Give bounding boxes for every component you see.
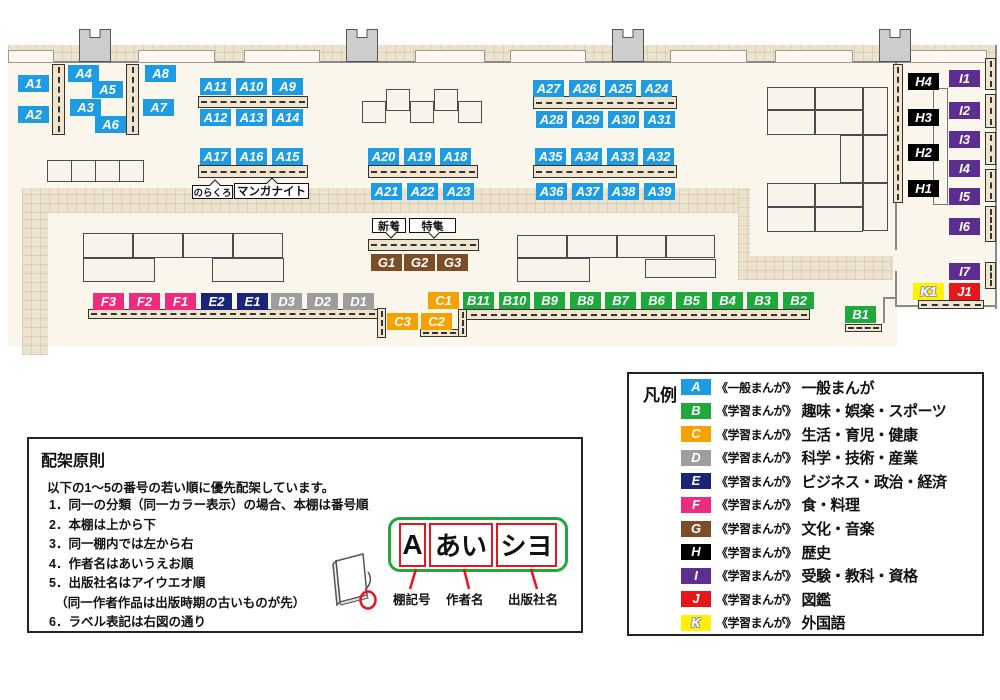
bookshelf	[533, 165, 677, 178]
bookshelf	[893, 64, 903, 203]
shelf-label-A21: A21	[371, 183, 402, 200]
shelf-label-A13: A13	[236, 109, 267, 126]
shelf-label-A12: A12	[200, 109, 231, 126]
shelf-label-A33: A33	[607, 148, 638, 165]
shelf-label-E2: E2	[201, 293, 232, 310]
shelf-label-B8: B8	[570, 292, 601, 309]
pillar	[612, 29, 644, 62]
shelf-label-B11: B11	[463, 292, 494, 309]
reading-table	[410, 101, 434, 123]
shelf-label-I6: I6	[949, 218, 980, 235]
shelf-label-A10: A10	[236, 78, 267, 95]
wall-shelf	[8, 50, 54, 63]
reading-table	[617, 235, 666, 258]
principles-title: 配架原則	[41, 447, 105, 471]
shelf-label-I1: I1	[949, 70, 980, 87]
shelf-label-B9: B9	[534, 292, 565, 309]
pillar	[79, 29, 111, 62]
reading-table	[840, 135, 863, 183]
shelf-label-A4: A4	[68, 65, 99, 82]
shelf-label-B4: B4	[712, 292, 743, 309]
shelf-label-A24: A24	[641, 80, 672, 97]
legend-title: 凡例	[643, 381, 677, 406]
legend-chip-A: A	[681, 379, 711, 395]
bookshelf	[198, 96, 308, 108]
shelf-label-A29: A29	[572, 111, 603, 128]
label-field-棚記号: A	[399, 523, 426, 567]
legend-chip-G: G	[681, 521, 711, 537]
shelf-label-A30: A30	[608, 111, 639, 128]
pillar-notch	[890, 29, 901, 38]
principles-line: 5．出版社名はアイウエオ順	[49, 574, 368, 594]
wall	[883, 297, 897, 299]
shelf-label-B2: B2	[783, 292, 814, 309]
shelf-label-A15: A15	[272, 148, 303, 165]
legend-item-E: E《学習まんが》ビジネス・政治・経済	[681, 473, 947, 489]
principles-line: 2．本棚は上から下	[49, 516, 368, 536]
principles-line: 6．ラベル表記は右図の通り	[49, 613, 368, 633]
legend-item-J: J《学習まんが》図鑑	[681, 591, 947, 607]
legend-scope: 《学習まんが》	[716, 567, 797, 584]
book-spine-label-icon	[326, 548, 380, 612]
reading-table	[645, 259, 716, 278]
legend-scope: 《学習まんが》	[716, 614, 797, 631]
shelf-label-A3: A3	[70, 99, 101, 116]
legend-item-F: F《学習まんが》食・料理	[681, 497, 947, 513]
wall	[883, 297, 885, 323]
reading-table	[666, 235, 715, 258]
shelf-label-A1: A1	[18, 75, 49, 92]
principles-line: （同一作者作品は出版時期の古いものが先）	[49, 594, 368, 614]
legend-category-name: 食・料理	[802, 494, 860, 515]
shelf-label-I7: I7	[949, 263, 980, 280]
legend-item-B: B《学習まんが》趣味・娯楽・スポーツ	[681, 403, 947, 419]
shelf-label-A22: A22	[407, 183, 438, 200]
shelf-label-A9: A9	[272, 78, 303, 95]
shelf-label-B10: B10	[499, 292, 530, 309]
reading-table	[83, 258, 155, 282]
pillar	[346, 29, 378, 62]
label-example: Aあいシヨ	[388, 517, 568, 572]
bookshelf	[126, 64, 139, 135]
label-field-caption: 出版社名	[508, 589, 558, 608]
bookshelf	[458, 309, 467, 337]
shelf-label-G1: G1	[371, 254, 402, 271]
label-field-作者名: あい	[429, 523, 493, 567]
legend-chip-H: H	[681, 544, 711, 560]
callout-マンガナイト: マンガナイト	[234, 183, 309, 199]
shelf-label-A26: A26	[569, 80, 600, 97]
callout-特集: 特集	[409, 218, 456, 233]
shelf-label-A25: A25	[605, 80, 636, 97]
shelf-label-H3: H3	[908, 109, 939, 126]
shelf-label-D2: D2	[307, 293, 338, 310]
reading-table	[233, 233, 283, 258]
shelf-label-D3: D3	[271, 293, 302, 310]
bookshelf	[368, 165, 478, 178]
reading-table	[767, 207, 815, 232]
legend-item-H: H《学習まんが》歴史	[681, 544, 947, 560]
legend-chip-D: D	[681, 450, 711, 466]
shelf-label-A17: A17	[200, 148, 231, 165]
shelf-label-A14: A14	[272, 109, 303, 126]
principles-intro: 以下の1～5の番号の若い順に優先配架しています。	[47, 477, 334, 496]
principles-list: 1．同一の分類（同一カラー表示）の場合、本棚は番号順2．本棚は上から下3．同一棚…	[49, 496, 368, 633]
pillar-notch	[357, 29, 368, 38]
reading-table	[767, 183, 815, 207]
bookshelf	[377, 308, 386, 338]
bookshelf	[985, 94, 996, 128]
wall-shelf	[415, 50, 485, 63]
legend-rows: A《一般まんが》一般まんがB《学習まんが》趣味・娯楽・スポーツC《学習まんが》生…	[681, 379, 947, 631]
floor-map-page: A1A2A4A3A5A6A8A7A11A10A9A12A13A14A17A16A…	[0, 0, 1000, 700]
bookshelf	[458, 309, 810, 320]
shelf-label-A27: A27	[533, 80, 564, 97]
shelf-label-G3: G3	[437, 254, 468, 271]
legend-category-name: ビジネス・政治・経済	[802, 471, 947, 492]
bookshelf	[52, 64, 65, 135]
shelf-label-A36: A36	[536, 183, 567, 200]
shelf-label-I2: I2	[949, 102, 980, 119]
shelf-label-A28: A28	[536, 111, 567, 128]
shelf-label-I4: I4	[949, 160, 980, 177]
reading-table	[863, 183, 888, 231]
bookshelf	[198, 165, 308, 178]
legend-scope: 《学習まんが》	[716, 402, 797, 419]
legend-category-name: 趣味・娯楽・スポーツ	[802, 400, 947, 421]
shelf-label-A23: A23	[443, 183, 474, 200]
shelf-label-A39: A39	[644, 183, 675, 200]
wall-shelf	[244, 50, 320, 63]
wall	[895, 271, 897, 307]
legend-scope: 《一般まんが》	[716, 379, 797, 396]
shelf-label-A2: A2	[18, 106, 49, 123]
legend-chip-F: F	[681, 497, 711, 513]
shelf-label-B7: B7	[605, 292, 636, 309]
reading-table	[815, 87, 863, 110]
shelf-label-A38: A38	[608, 183, 639, 200]
bookshelf	[533, 96, 677, 109]
shelf-label-D1: D1	[343, 293, 374, 310]
reading-table	[386, 89, 410, 111]
principles-line: 1．同一の分類（同一カラー表示）の場合、本棚は番号順	[49, 496, 368, 516]
principles-line: 4．作者名はあいうえお順	[49, 555, 368, 575]
reading-table	[434, 89, 458, 111]
label-field-出版社名: シヨ	[496, 523, 557, 567]
legend-item-K: K《学習まんが》外国語	[681, 615, 947, 631]
principles-line: 3．同一棚内では左から右	[49, 535, 368, 555]
pillar-notch	[90, 29, 101, 38]
shelf-label-E1: E1	[237, 293, 268, 310]
legend-category-name: 科学・技術・産業	[802, 447, 918, 468]
reading-table	[183, 233, 233, 258]
shelf-label-A37: A37	[572, 183, 603, 200]
shelf-label-A6: A6	[95, 116, 126, 133]
shelf-label-A32: A32	[643, 148, 674, 165]
walkway-carpet	[22, 188, 48, 355]
label-field-caption: 棚記号	[393, 589, 431, 608]
legend-panel: 凡例 A《一般まんが》一般まんがB《学習まんが》趣味・娯楽・スポーツC《学習まん…	[627, 372, 984, 636]
shelf-label-I3: I3	[949, 131, 980, 148]
shelf-label-B5: B5	[676, 292, 707, 309]
shelf-label-G2: G2	[404, 254, 435, 271]
legend-item-A: A《一般まんが》一般まんが	[681, 379, 947, 395]
legend-category-name: 生活・育児・健康	[802, 424, 918, 445]
shelf-label-A7: A7	[143, 99, 174, 116]
shelf-label-A34: A34	[571, 148, 602, 165]
bookshelf	[985, 58, 996, 90]
bookshelf	[420, 329, 459, 337]
reading-table	[567, 235, 617, 258]
legend-category-name: 外国語	[802, 612, 846, 633]
shelf-label-A31: A31	[644, 111, 675, 128]
legend-chip-B: B	[681, 403, 711, 419]
shelf-label-J1: J1	[949, 283, 980, 300]
shelf-label-A19: A19	[404, 148, 435, 165]
shelf-label-C1: C1	[428, 292, 459, 309]
shelf-label-I5: I5	[949, 188, 980, 205]
callout-のらくろ: のらくろ	[192, 185, 233, 199]
shelf-label-K1: K1	[913, 283, 944, 300]
legend-item-G: G《学習まんが》文化・音楽	[681, 521, 947, 537]
reading-table	[517, 258, 590, 282]
legend-scope: 《学習まんが》	[716, 473, 797, 490]
legend-category-name: 図鑑	[802, 589, 831, 610]
shelf-label-A8: A8	[145, 65, 176, 82]
wall-shelf	[903, 50, 987, 63]
bookshelf	[88, 309, 378, 319]
shelf-label-B6: B6	[641, 292, 672, 309]
legend-chip-K: K	[681, 615, 711, 631]
legend-scope: 《学習まんが》	[716, 544, 797, 561]
legend-category-name: 受験・教科・資格	[802, 565, 918, 586]
pillar-notch	[623, 29, 634, 38]
reading-table	[517, 235, 567, 258]
legend-scope: 《学習まんが》	[716, 520, 797, 537]
reading-table	[212, 258, 284, 282]
shelf-label-B3: B3	[747, 292, 778, 309]
bookshelf	[985, 169, 996, 202]
legend-item-I: I《学習まんが》受験・教科・資格	[681, 568, 947, 584]
reading-table	[362, 101, 386, 123]
shelf-label-H1: H1	[908, 180, 939, 197]
wall-shelf	[775, 50, 853, 63]
shelf-label-A20: A20	[368, 148, 399, 165]
reading-table	[815, 110, 863, 135]
legend-category-name: 歴史	[802, 542, 831, 563]
bookshelf	[368, 239, 479, 251]
legend-item-C: C《学習まんが》生活・育児・健康	[681, 426, 947, 442]
shelf-label-F3: F3	[93, 293, 124, 310]
reading-table	[767, 87, 815, 110]
bookshelf	[985, 132, 996, 165]
legend-scope: 《学習まんが》	[716, 496, 797, 513]
label-field-caption: 作者名	[446, 589, 484, 608]
bookshelf	[985, 206, 996, 242]
bookshelf	[918, 300, 984, 309]
legend-category-name: 文化・音楽	[802, 518, 875, 539]
shelf-label-A35: A35	[535, 148, 566, 165]
legend-scope: 《学習まんが》	[716, 449, 797, 466]
shelf-label-A16: A16	[236, 148, 267, 165]
bookshelf	[985, 262, 996, 289]
reading-table	[47, 160, 72, 182]
reading-table	[815, 207, 863, 232]
reading-table	[95, 160, 120, 182]
shelf-label-F2: F2	[129, 293, 160, 310]
shelf-label-H2: H2	[908, 144, 939, 161]
shelf-label-A11: A11	[200, 78, 231, 95]
legend-chip-J: J	[681, 591, 711, 607]
shelf-label-A18: A18	[440, 148, 471, 165]
legend-chip-C: C	[681, 426, 711, 442]
legend-chip-I: I	[681, 568, 711, 584]
reading-table	[815, 183, 863, 207]
legend-category-name: 一般まんが	[802, 377, 875, 398]
bookshelf	[845, 324, 882, 332]
legend-chip-E: E	[681, 473, 711, 489]
legend-item-D: D《学習まんが》科学・技術・産業	[681, 450, 947, 466]
callout-新着: 新着	[372, 218, 406, 233]
shelf-label-H4: H4	[908, 73, 939, 90]
reading-table	[83, 233, 133, 258]
reading-table	[133, 233, 183, 258]
reading-table	[863, 87, 888, 135]
shelf-label-C2: C2	[421, 313, 452, 330]
reading-table	[119, 160, 144, 182]
shelf-label-A5: A5	[92, 81, 123, 98]
legend-scope: 《学習まんが》	[716, 591, 797, 608]
pillar	[879, 29, 911, 62]
shelf-label-F1: F1	[165, 293, 196, 310]
shelf-label-C3: C3	[387, 313, 418, 330]
walkway-carpet	[738, 256, 893, 280]
wall-shelf	[138, 50, 215, 63]
reading-table	[71, 160, 96, 182]
legend-scope: 《学習まんが》	[716, 426, 797, 443]
shelf-label-B1: B1	[845, 306, 876, 323]
reading-table	[458, 101, 482, 123]
reading-table	[767, 110, 815, 135]
wall-shelf	[510, 50, 586, 63]
reading-table	[863, 135, 888, 183]
wall-shelf	[670, 50, 747, 63]
